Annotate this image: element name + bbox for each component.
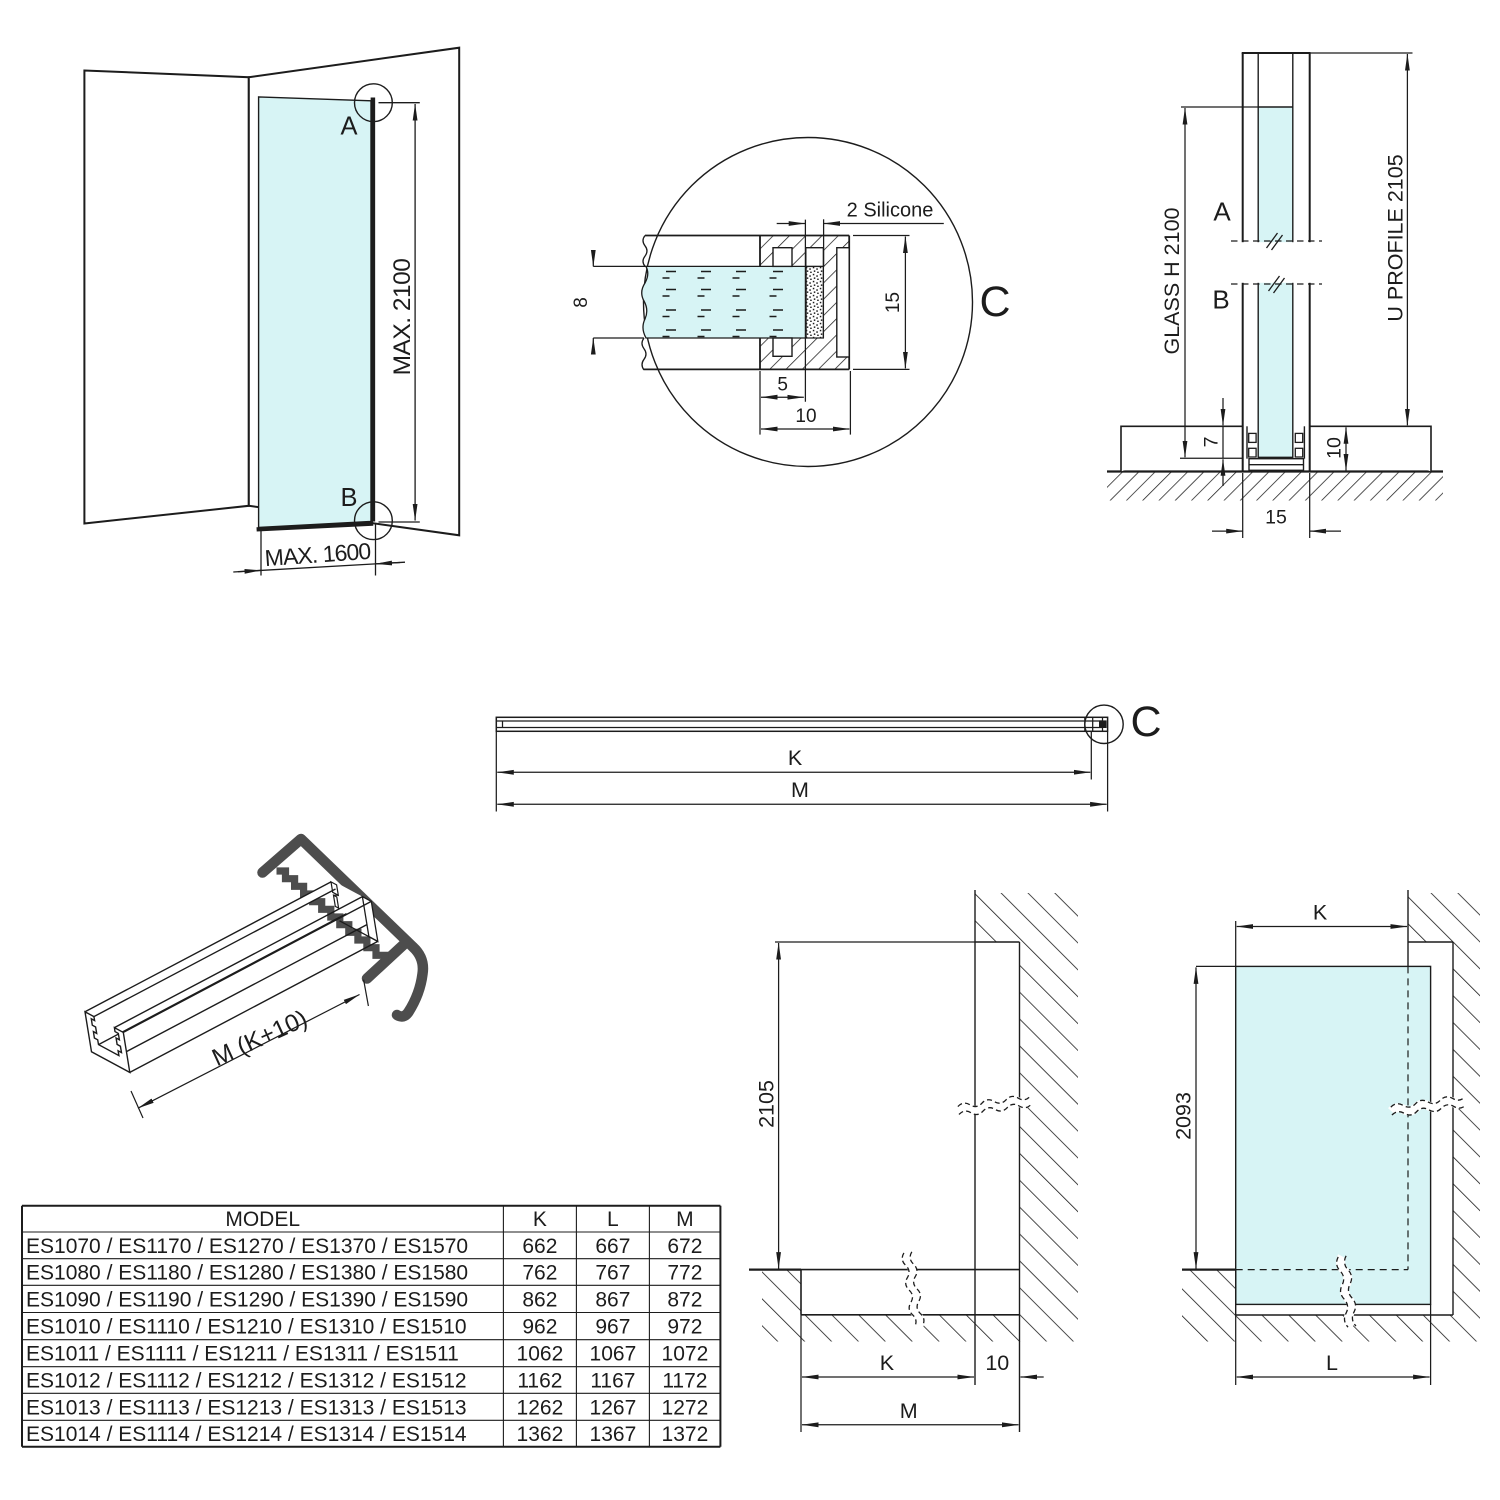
svg-text:1367: 1367: [590, 1423, 637, 1446]
svg-text:B: B: [1212, 285, 1229, 315]
svg-text:K: K: [788, 746, 803, 770]
svg-text:2093: 2093: [1172, 1092, 1196, 1140]
svg-text:ES1080 / ES1180 / ES1280 / ES1: ES1080 / ES1180 / ES1280 / ES1380 / ES15…: [26, 1262, 468, 1285]
svg-text:1062: 1062: [517, 1343, 564, 1366]
svg-text:ES1070 / ES1170 / ES1270 / ES1: ES1070 / ES1170 / ES1270 / ES1370 / ES15…: [26, 1235, 468, 1258]
svg-text:L: L: [1326, 1351, 1338, 1375]
svg-text:A: A: [340, 113, 357, 141]
svg-text:10: 10: [795, 406, 816, 427]
svg-text:ES1014 / ES1114 / ES1214 / ES1: ES1014 / ES1114 / ES1214 / ES1314 / ES15…: [26, 1423, 467, 1446]
svg-text:867: 867: [595, 1288, 630, 1311]
svg-text:C: C: [1130, 698, 1161, 746]
svg-text:2 Silicone: 2 Silicone: [847, 200, 934, 222]
svg-text:L: L: [607, 1208, 619, 1231]
svg-text:C: C: [979, 278, 1010, 326]
svg-text:ES1011 / ES1111 / ES1211 / ES1: ES1011 / ES1111 / ES1211 / ES1311 / ES15…: [26, 1343, 459, 1366]
svg-text:672: 672: [667, 1235, 702, 1258]
svg-text:GLASS H 2100: GLASS H 2100: [1160, 207, 1184, 354]
svg-text:ES1012 / ES1112 / ES1212 / ES1: ES1012 / ES1112 / ES1212 / ES1312 / ES15…: [26, 1370, 467, 1393]
svg-text:A: A: [1213, 197, 1231, 227]
svg-text:1262: 1262: [517, 1396, 564, 1419]
svg-text:1067: 1067: [590, 1343, 637, 1366]
svg-text:662: 662: [522, 1235, 557, 1258]
svg-text:MAX. 2100: MAX. 2100: [389, 259, 416, 376]
svg-text:ES1013 / ES1113 / ES1213 / ES1: ES1013 / ES1113 / ES1213 / ES1313 / ES15…: [26, 1396, 467, 1419]
svg-text:B: B: [340, 484, 357, 512]
svg-text:10: 10: [1324, 437, 1346, 459]
svg-text:10: 10: [985, 1351, 1009, 1375]
svg-text:1167: 1167: [590, 1370, 635, 1393]
svg-text:M: M: [900, 1399, 918, 1423]
svg-text:5: 5: [777, 375, 788, 396]
svg-text:K: K: [533, 1208, 547, 1231]
svg-text:ES1010 / ES1110 / ES1210 / ES1: ES1010 / ES1110 / ES1210 / ES1310 / ES15…: [26, 1316, 467, 1339]
svg-text:15: 15: [883, 292, 904, 313]
svg-text:972: 972: [667, 1316, 702, 1339]
svg-text:2105: 2105: [755, 1080, 779, 1128]
svg-text:762: 762: [522, 1262, 557, 1285]
svg-text:1272: 1272: [662, 1396, 709, 1419]
svg-text:967: 967: [595, 1316, 630, 1339]
svg-text:872: 872: [667, 1288, 702, 1311]
svg-text:1162: 1162: [517, 1370, 562, 1393]
svg-text:667: 667: [595, 1235, 630, 1258]
svg-text:1372: 1372: [662, 1423, 709, 1446]
svg-text:U PROFILE 2105: U PROFILE 2105: [1384, 154, 1408, 321]
svg-text:772: 772: [667, 1262, 702, 1285]
svg-text:M: M: [676, 1208, 694, 1231]
svg-text:7: 7: [1201, 437, 1223, 448]
svg-text:MODEL: MODEL: [225, 1208, 300, 1231]
svg-text:15: 15: [1265, 507, 1287, 529]
svg-text:862: 862: [522, 1288, 557, 1311]
svg-text:767: 767: [595, 1262, 630, 1285]
svg-text:M: M: [791, 778, 809, 802]
svg-text:962: 962: [522, 1316, 557, 1339]
svg-text:1362: 1362: [517, 1423, 564, 1446]
svg-text:1172: 1172: [662, 1370, 707, 1393]
svg-text:1072: 1072: [662, 1343, 709, 1366]
svg-text:1267: 1267: [590, 1396, 637, 1419]
svg-text:K: K: [1313, 901, 1328, 925]
svg-text:8: 8: [571, 297, 592, 308]
svg-text:K: K: [880, 1351, 895, 1375]
svg-text:ES1090 / ES1190 / ES1290 / ES1: ES1090 / ES1190 / ES1290 / ES1390 / ES15…: [26, 1288, 468, 1311]
